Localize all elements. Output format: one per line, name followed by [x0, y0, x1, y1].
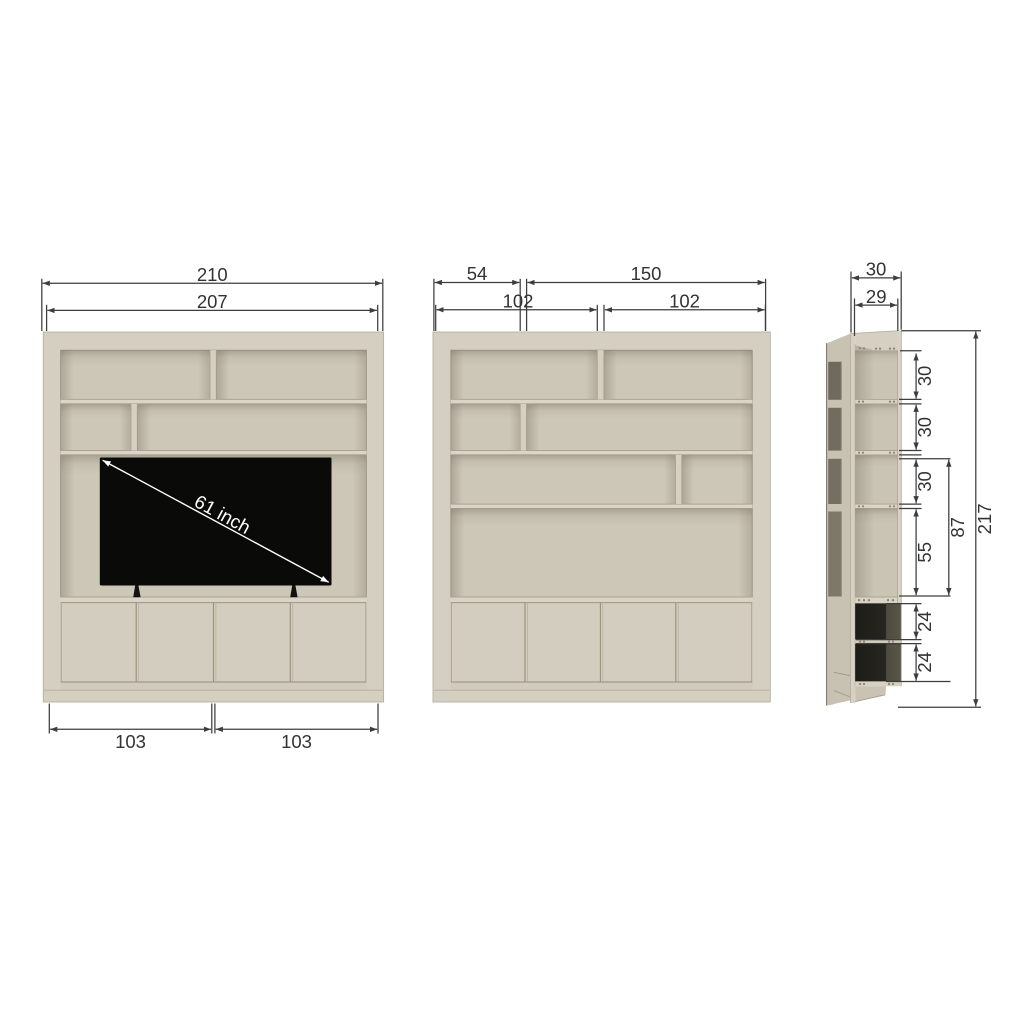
- svg-text:207: 207: [197, 291, 228, 312]
- svg-text:24: 24: [914, 652, 935, 673]
- svg-text:30: 30: [866, 259, 887, 280]
- svg-text:210: 210: [197, 264, 228, 285]
- svg-text:102: 102: [669, 291, 700, 312]
- svg-text:30: 30: [914, 366, 935, 387]
- svg-text:87: 87: [947, 517, 968, 538]
- svg-text:30: 30: [914, 417, 935, 438]
- svg-text:102: 102: [503, 291, 534, 312]
- svg-text:103: 103: [281, 731, 312, 752]
- svg-text:24: 24: [914, 611, 935, 632]
- svg-text:54: 54: [467, 263, 488, 284]
- svg-text:103: 103: [115, 731, 146, 752]
- svg-text:150: 150: [631, 263, 662, 284]
- svg-text:29: 29: [866, 286, 887, 307]
- svg-text:55: 55: [914, 542, 935, 563]
- svg-text:30: 30: [914, 471, 935, 492]
- svg-text:217: 217: [974, 503, 995, 534]
